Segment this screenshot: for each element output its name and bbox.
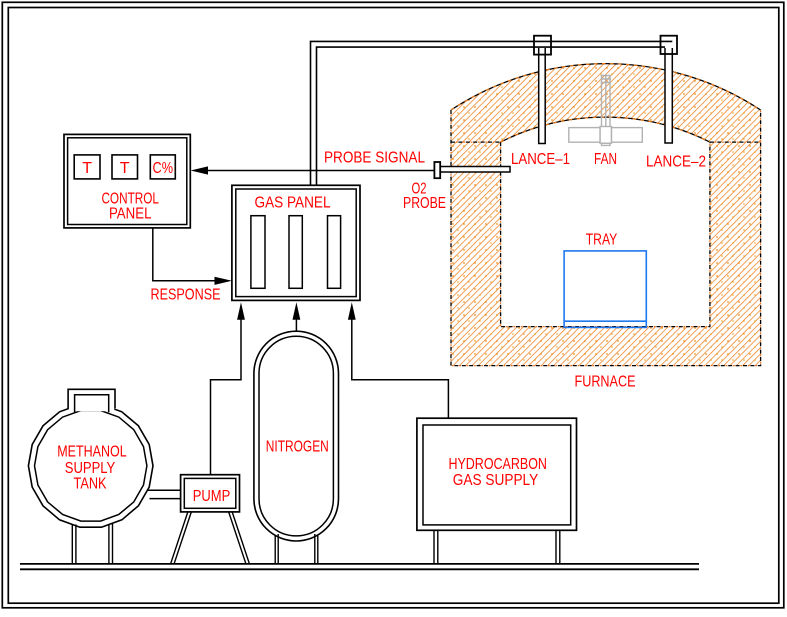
svg-text:PUMP: PUMP xyxy=(193,488,231,505)
svg-text:NITROGEN: NITROGEN xyxy=(266,438,329,455)
svg-text:PANEL: PANEL xyxy=(109,205,152,222)
svg-text:GAS PANEL: GAS PANEL xyxy=(255,194,331,211)
svg-text:C%: C% xyxy=(153,160,174,177)
svg-text:T: T xyxy=(120,160,130,177)
svg-text:PROBE SIGNAL: PROBE SIGNAL xyxy=(324,150,425,167)
svg-text:TANK: TANK xyxy=(74,476,107,493)
svg-text:LANCE–2: LANCE–2 xyxy=(646,154,706,171)
svg-text:METHANOL: METHANOL xyxy=(57,444,127,461)
svg-text:PROBE: PROBE xyxy=(403,195,446,212)
svg-text:GAS SUPPLY: GAS SUPPLY xyxy=(453,472,539,489)
svg-text:RESPONSE: RESPONSE xyxy=(151,287,221,304)
svg-text:TRAY: TRAY xyxy=(586,232,618,249)
svg-text:T: T xyxy=(82,160,92,177)
svg-text:FAN: FAN xyxy=(594,151,617,168)
svg-text:FURNACE: FURNACE xyxy=(575,373,636,390)
svg-text:LANCE–1: LANCE–1 xyxy=(511,151,570,168)
svg-text:HYDROCARBON: HYDROCARBON xyxy=(448,456,547,473)
